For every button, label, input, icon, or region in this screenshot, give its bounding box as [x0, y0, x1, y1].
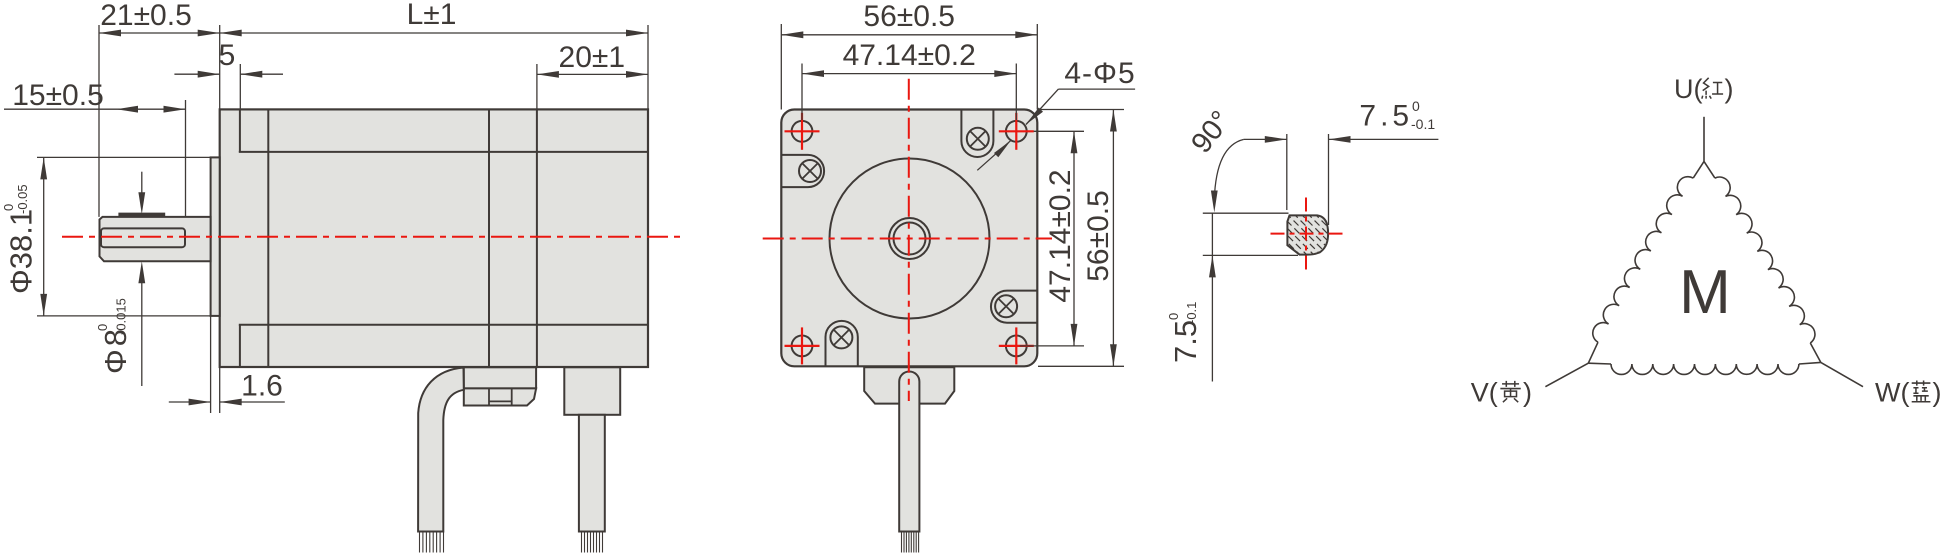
svg-text:Φ38.1: Φ38.1 [4, 209, 39, 294]
svg-text:0: 0 [1, 204, 16, 211]
svg-text:V(: V( [1471, 377, 1498, 407]
svg-text:): ) [1933, 377, 1941, 407]
svg-text:90°: 90° [1185, 105, 1237, 159]
svg-text:-0.015: -0.015 [114, 298, 129, 335]
svg-text:7.5: 7.5 [1359, 100, 1413, 133]
svg-text:20±1: 20±1 [559, 41, 626, 74]
svg-text:21±0.5: 21±0.5 [100, 0, 192, 32]
svg-text:0: 0 [1166, 313, 1181, 320]
svg-text:-0.1: -0.1 [1411, 116, 1435, 132]
svg-text:1.6: 1.6 [241, 370, 283, 403]
svg-text:M: M [1679, 258, 1731, 327]
svg-text:4-Φ5: 4-Φ5 [1064, 57, 1135, 90]
svg-text:-0.1: -0.1 [1184, 302, 1199, 324]
svg-text:-0.05: -0.05 [15, 184, 30, 214]
svg-text:): ) [1725, 74, 1734, 104]
svg-text:L±1: L±1 [407, 0, 457, 31]
svg-text:47.14±0.2: 47.14±0.2 [1044, 169, 1077, 302]
svg-text:7.5: 7.5 [1168, 320, 1203, 363]
svg-text:): ) [1523, 377, 1532, 407]
svg-text:56±0.5: 56±0.5 [1082, 190, 1115, 282]
svg-text:15±0.5: 15±0.5 [12, 79, 104, 112]
svg-text:47.14±0.2: 47.14±0.2 [843, 39, 976, 72]
svg-text:5: 5 [219, 39, 236, 72]
svg-text:U(: U( [1674, 74, 1703, 104]
svg-text:W(: W( [1875, 377, 1909, 407]
svg-text:0: 0 [1412, 98, 1420, 114]
svg-text:0: 0 [95, 324, 110, 331]
svg-text:56±0.5: 56±0.5 [863, 0, 955, 33]
